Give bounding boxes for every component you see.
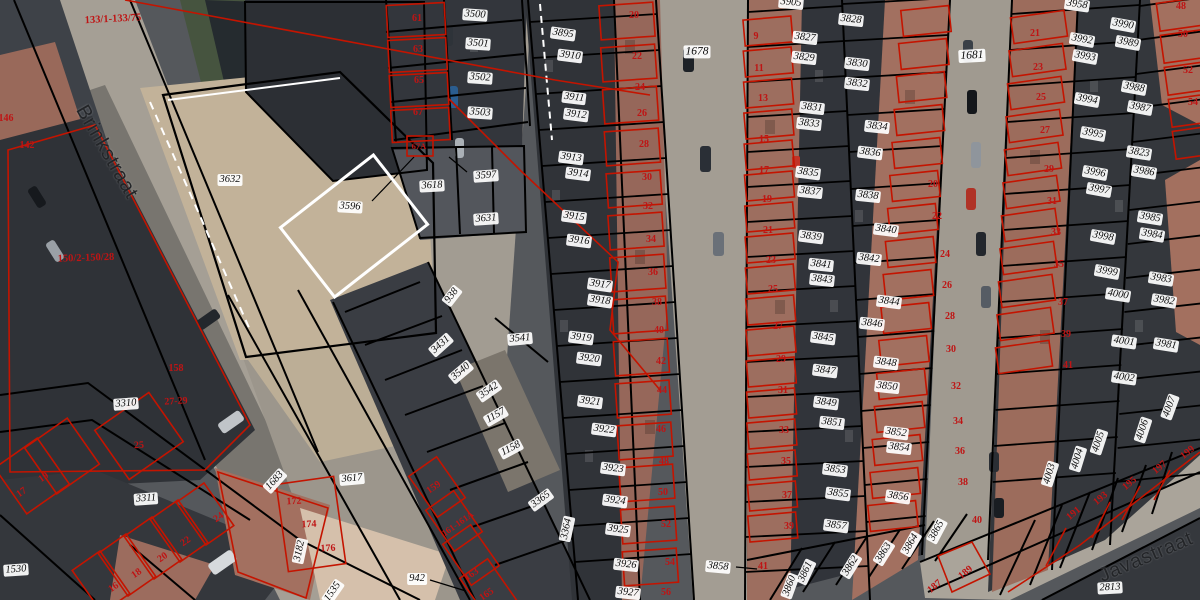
parcel-label-3999: 3999 (1094, 264, 1121, 280)
parcel-label-942: 942 (407, 573, 427, 585)
parcel-label-1535: 1535 (321, 578, 345, 600)
house-number-40: 40 (972, 516, 982, 526)
parcel-label-1678: 1678 (684, 45, 711, 58)
house-number-52: 52 (1183, 66, 1193, 76)
house-number-165: 165 (478, 587, 496, 600)
parcel-label-3540: 3540 (448, 359, 475, 384)
parcel-label-3988: 3988 (1121, 80, 1148, 96)
house-number-20: 20 (928, 180, 938, 190)
parcel-label-4006: 4006 (1133, 416, 1152, 444)
parcel-label-4004: 4004 (1069, 445, 1088, 472)
house-number-27: 27 (773, 322, 783, 332)
house-number-21: 21 (763, 226, 773, 236)
house-number-24: 24 (212, 511, 226, 525)
house-number-24: 24 (635, 83, 645, 93)
parcel-label-1158: 1158 (497, 438, 524, 460)
house-number-31: 31 (1047, 197, 1057, 207)
house-number-48: 48 (659, 457, 669, 467)
house-number-54: 54 (1188, 98, 1198, 108)
house-number-17: 17 (759, 166, 769, 176)
house-number-25: 25 (1036, 93, 1046, 103)
house-number-27: 27 (1040, 126, 1050, 136)
house-number-15: 15 (759, 135, 769, 145)
parcel-label-3864: 3864 (900, 530, 923, 558)
street-name-brinkstraat: Brinkstraat (72, 102, 142, 202)
parcel-label-3847: 3847 (812, 363, 838, 378)
house-number-50: 50 (658, 488, 668, 498)
parcel-label-3829: 3829 (791, 51, 817, 66)
house-number-56: 56 (661, 588, 671, 598)
house-number-25: 25 (134, 441, 145, 452)
parcel-label-3841: 3841 (808, 258, 834, 273)
parcel-label-3895: 3895 (550, 26, 576, 41)
parcel-label-3828: 3828 (838, 13, 864, 28)
house-number-33: 33 (1051, 228, 1061, 238)
house-number-172: 172 (286, 497, 302, 508)
house-number-67: 67 (413, 108, 423, 118)
house-number-37: 37 (1058, 298, 1068, 308)
parcel-label-3992: 3992 (1069, 32, 1096, 48)
house-number-18: 18 (130, 567, 144, 581)
parcel-label-3858: 3858 (705, 560, 731, 574)
parcel-label-3542: 3542 (475, 379, 502, 403)
parcel-label-3994: 3994 (1074, 92, 1101, 108)
parcel-label-3840: 3840 (873, 222, 899, 237)
house-number-176: 176 (320, 544, 336, 555)
parcel-label-3911: 3911 (561, 91, 587, 106)
parcel-label-3925: 3925 (605, 522, 631, 537)
house-number-54: 54 (665, 558, 675, 568)
house-number-9: 9 (754, 32, 759, 42)
house-number-20: 20 (156, 551, 170, 565)
parcel-label-3310: 3310 (113, 397, 139, 411)
house-number-19: 19 (762, 195, 772, 205)
house-number-52: 52 (661, 520, 671, 530)
parcel-label-3848: 3848 (873, 355, 899, 370)
house-number-48: 48 (1176, 2, 1186, 12)
house-number-150-2-150-28: 150/2-150/28 (58, 253, 115, 265)
house-number-23: 23 (1033, 63, 1043, 73)
house-number-41: 41 (758, 562, 768, 572)
parcel-label-3987: 3987 (1127, 100, 1154, 116)
parcel-label-3921: 3921 (577, 394, 603, 409)
house-number-30: 30 (642, 173, 652, 183)
house-number-189: 189 (957, 564, 975, 581)
house-number-38: 38 (958, 478, 968, 488)
street-name-javastraat: Javastraat (1096, 528, 1196, 586)
parcel-label-3854: 3854 (886, 441, 912, 456)
house-number-27-29: 27-29 (164, 396, 188, 407)
parcel-label-3834: 3834 (864, 120, 890, 135)
parcel-label-3863: 3863 (872, 539, 895, 567)
parcel-label-4000: 4000 (1105, 287, 1132, 303)
parcel-label-3855: 3855 (825, 486, 851, 501)
house-number-163: 163 (463, 567, 481, 584)
parcel-label-3842: 3842 (856, 252, 882, 267)
parcel-label-3851: 3851 (819, 416, 845, 431)
parcel-label-3913: 3913 (558, 150, 584, 165)
parcel-label-3836: 3836 (857, 145, 883, 160)
parcel-label-3503: 3503 (467, 106, 493, 120)
parcel-label-3838: 3838 (855, 189, 881, 204)
parcel-label-3993: 3993 (1072, 49, 1099, 65)
house-number-38: 38 (652, 298, 662, 308)
house-number-32: 32 (951, 382, 961, 392)
house-number-28: 28 (639, 140, 649, 150)
parcel-label-3865: 3865 (926, 517, 948, 545)
parcel-label-3833: 3833 (796, 117, 822, 132)
parcel-label-3632: 3632 (218, 174, 243, 186)
parcel-label-3846: 3846 (859, 317, 885, 332)
parcel-label-3924: 3924 (602, 493, 628, 508)
parcel-label-3541: 3541 (507, 332, 533, 346)
parcel-label-3500: 3500 (462, 8, 488, 22)
house-number-19: 19 (37, 471, 51, 485)
parcel-label-3597: 3597 (473, 169, 499, 183)
house-number-65: 65 (414, 76, 424, 86)
house-number-67a: 67A (412, 142, 427, 151)
house-number-32: 32 (643, 202, 653, 212)
house-number-199: 199 (1179, 444, 1197, 461)
parcel-label-3844: 3844 (876, 294, 902, 309)
parcel-label-3839: 3839 (798, 229, 824, 244)
parcel-label-3914: 3914 (565, 166, 591, 181)
parcel-label-3922: 3922 (591, 422, 617, 437)
house-number-161-161a: 161-161A (440, 510, 475, 538)
house-number-24: 24 (940, 250, 950, 260)
parcel-label-3916: 3916 (566, 233, 592, 248)
parcel-label-3927: 3927 (615, 586, 641, 600)
house-number-29: 29 (776, 355, 786, 365)
parcel-label-3831: 3831 (799, 101, 825, 116)
parcel-label-3983: 3983 (1148, 271, 1175, 287)
parcel-label-3920: 3920 (576, 351, 602, 366)
house-number-193: 193 (1092, 490, 1110, 507)
parcel-label-4002: 4002 (1111, 370, 1137, 385)
parcel-label-1683: 1683 (262, 468, 288, 495)
parcel-label-3837: 3837 (797, 185, 823, 200)
parcel-label-4003: 4003 (1041, 460, 1060, 487)
parcel-label-3845: 3845 (810, 330, 836, 345)
parcel-label-3182: 3182 (292, 538, 309, 565)
parcel-label-3958: 3958 (1064, 0, 1090, 13)
parcel-label-3431: 3431 (428, 332, 455, 358)
parcel-label-3910: 3910 (557, 48, 583, 63)
parcel-label-3502: 3502 (467, 71, 493, 85)
parcel-label-3923: 3923 (600, 461, 626, 476)
parcel-label-1530: 1530 (3, 563, 29, 577)
parcel-label-3861: 3861 (795, 558, 816, 586)
parcel-label-3365: 3365 (527, 488, 554, 512)
parcel-label-3985: 3985 (1137, 210, 1164, 226)
parcel-label-4005: 4005 (1089, 428, 1108, 456)
parcel-label-3905: 3905 (778, 0, 804, 10)
house-number-33: 33 (779, 426, 789, 436)
house-number-36: 36 (955, 447, 965, 457)
parcel-label-3830: 3830 (844, 57, 870, 72)
house-number-50: 50 (1178, 30, 1188, 40)
parcel-label-3996: 3996 (1082, 165, 1109, 181)
parcel-label-3984: 3984 (1139, 227, 1166, 243)
parcel-label-3823: 3823 (1126, 145, 1153, 161)
house-number-13: 13 (758, 94, 768, 104)
parcel-label-4001: 4001 (1111, 334, 1137, 349)
house-number-26: 26 (637, 109, 647, 119)
house-number-46: 46 (656, 425, 666, 435)
parcel-label-3995: 3995 (1080, 126, 1107, 142)
parcel-label-3997: 3997 (1086, 182, 1113, 198)
parcel-label-3856: 3856 (885, 489, 911, 504)
parcel-label-3852: 3852 (883, 425, 909, 440)
house-number-159: 159 (425, 480, 443, 497)
parcel-label-3618: 3618 (419, 179, 445, 192)
house-number-133-1-133-75: 133/1-133/75 (84, 13, 141, 26)
parcel-label-3926: 3926 (613, 558, 639, 573)
parcel-label-3918: 3918 (587, 293, 613, 308)
house-number-39: 39 (1061, 330, 1071, 340)
house-number-28: 28 (945, 312, 955, 322)
house-number-17: 17 (15, 486, 29, 500)
house-number-41: 41 (1063, 361, 1073, 371)
house-number-36: 36 (648, 268, 658, 278)
parcel-label-938: 938 (441, 285, 463, 308)
parcel-label-3915: 3915 (561, 209, 587, 224)
house-number-34: 34 (953, 417, 963, 427)
parcel-label-3862: 3862 (839, 552, 862, 580)
parcel-label-3850: 3850 (874, 380, 900, 395)
house-number-20: 20 (629, 11, 639, 21)
house-number-174: 174 (301, 520, 317, 531)
house-number-42: 42 (656, 357, 666, 367)
parcel-label-3917: 3917 (587, 277, 613, 292)
house-number-142: 142 (20, 141, 35, 151)
house-number-197: 197 (1151, 459, 1169, 476)
parcel-label-3617: 3617 (339, 472, 365, 486)
house-number-35: 35 (1054, 260, 1064, 270)
parcel-label-3501: 3501 (465, 37, 491, 51)
parcel-label-3832: 3832 (844, 77, 870, 92)
house-number-37: 37 (782, 491, 792, 501)
house-number-187: 187 (926, 578, 944, 595)
parcel-label-3989: 3989 (1115, 35, 1142, 51)
parcel-label-3849: 3849 (813, 395, 839, 410)
parcel-label-3631: 3631 (473, 212, 499, 226)
house-number-22: 22 (179, 535, 193, 549)
house-number-34: 34 (646, 235, 656, 245)
house-number-22: 22 (932, 212, 942, 222)
parcel-label-3853: 3853 (822, 462, 848, 477)
parcel-label-3843: 3843 (809, 273, 835, 288)
house-number-39: 39 (784, 522, 794, 532)
house-number-146: 146 (0, 114, 14, 124)
map-label-layer: 3500350135023503363235963618359736313895… (0, 0, 1200, 600)
parcel-label-3998: 3998 (1090, 229, 1117, 245)
parcel-label-3986: 3986 (1131, 164, 1158, 180)
parcel-label-3857: 3857 (823, 518, 849, 533)
parcel-label-3982: 3982 (1151, 293, 1178, 309)
parcel-label-3990: 3990 (1110, 17, 1137, 33)
parcel-label-3981: 3981 (1153, 337, 1180, 353)
house-number-63: 63 (413, 45, 423, 55)
parcel-label-4007: 4007 (1160, 393, 1180, 421)
house-number-16: 16 (107, 581, 121, 595)
house-number-191: 191 (1065, 505, 1083, 522)
house-number-30: 30 (946, 345, 956, 355)
house-number-25: 25 (768, 285, 778, 295)
cadastral-map[interactable]: 3500350135023503363235963618359736313895… (0, 0, 1200, 600)
parcel-label-3919: 3919 (568, 330, 594, 345)
parcel-label-1681: 1681 (958, 49, 986, 64)
parcel-label-3364: 3364 (559, 516, 576, 543)
house-number-195: 195 (1121, 475, 1139, 492)
house-number-21: 21 (1030, 29, 1040, 39)
house-number-23: 23 (766, 256, 776, 266)
house-number-44: 44 (657, 386, 667, 396)
house-number-26: 26 (942, 281, 952, 291)
house-number-40: 40 (654, 326, 664, 336)
house-number-31: 31 (778, 386, 788, 396)
house-number-61: 61 (412, 14, 422, 24)
house-number-11: 11 (754, 64, 763, 74)
parcel-label-3311: 3311 (133, 492, 158, 506)
house-number-158: 158 (169, 364, 184, 374)
parcel-label-3827: 3827 (792, 31, 818, 46)
house-number-22: 22 (632, 52, 642, 62)
parcel-label-3835: 3835 (795, 165, 821, 180)
parcel-label-3912: 3912 (563, 107, 589, 122)
house-number-35: 35 (781, 457, 791, 467)
parcel-label-3596: 3596 (337, 200, 363, 213)
house-number-29: 29 (1044, 165, 1054, 175)
parcel-label-1157: 1157 (482, 405, 509, 428)
